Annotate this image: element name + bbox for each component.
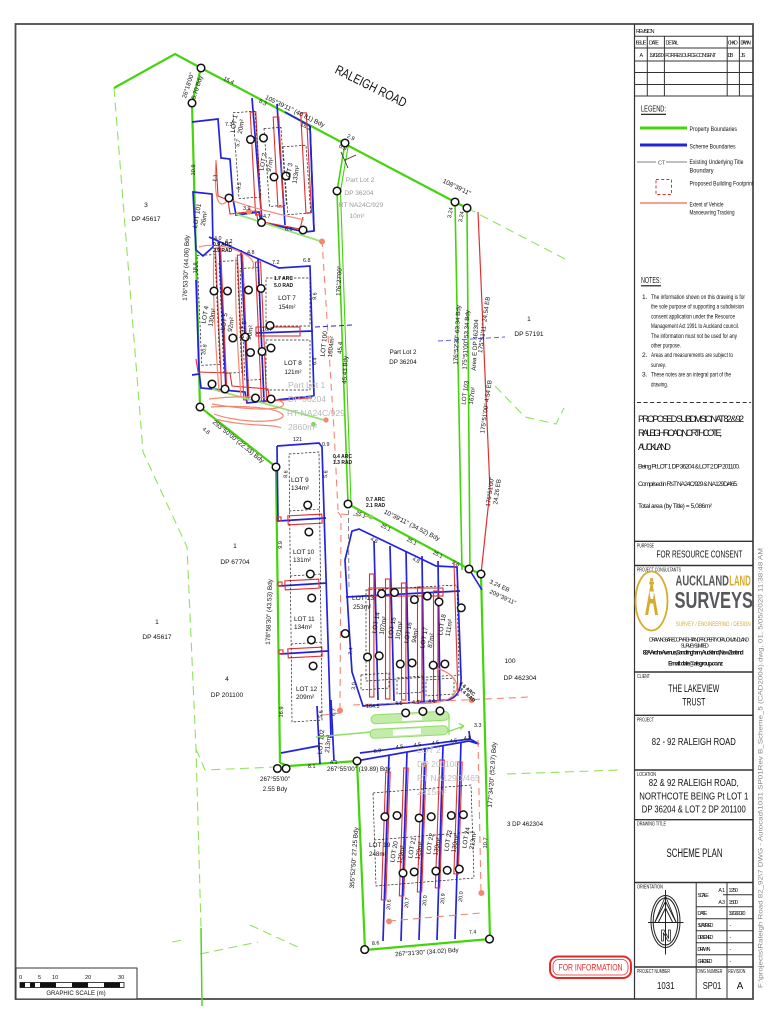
svg-text:97m²: 97m²	[266, 157, 275, 173]
svg-text:92m²: 92m²	[227, 317, 236, 333]
svg-text:20.0: 20.0	[458, 891, 465, 902]
svg-text:DP 36204: DP 36204	[344, 190, 374, 197]
svg-text:DP 36204: DP 36204	[389, 359, 417, 366]
svg-text:6.4: 6.4	[312, 357, 319, 365]
svg-text:SURVEYED: SURVEYED	[697, 923, 713, 929]
svg-text:LOT 19: LOT 19	[369, 842, 391, 849]
svg-text:20: 20	[85, 975, 91, 981]
svg-text:248m²: 248m²	[369, 851, 387, 858]
svg-text:REVISION: REVISION	[728, 969, 745, 975]
svg-text:DESIGNED: DESIGNED	[697, 935, 713, 941]
svg-text:2.1 RAD: 2.1 RAD	[366, 503, 386, 509]
svg-text:Management Act 1991 to Aucklan: Management Act 1991 to Auckland council.	[651, 323, 739, 330]
svg-text:26m²: 26m²	[200, 211, 209, 227]
svg-text:other purpose.: other purpose.	[651, 343, 681, 350]
svg-text:8.1: 8.1	[308, 764, 316, 770]
svg-text:Areas and measurements are sub: Areas and measurements are subject to	[651, 352, 733, 359]
svg-text:CLIENT: CLIENT	[637, 674, 650, 680]
svg-text:LEGEND:: LEGEND:	[641, 104, 666, 114]
svg-text:154m²: 154m²	[278, 305, 295, 311]
svg-text:4.5: 4.5	[395, 744, 403, 751]
svg-text:FOR INFORMATION: FOR INFORMATION	[559, 963, 623, 973]
svg-text:3.24: 3.24	[458, 211, 466, 223]
svg-text:-: -	[730, 947, 732, 953]
svg-text:DP 45617: DP 45617	[131, 216, 161, 223]
svg-text:F:\projects\Raleigh Road 82_92: F:\projects\Raleigh Road 82_92\7 DWG - A…	[759, 548, 765, 988]
svg-text:A: A	[640, 53, 644, 59]
svg-text:25.1: 25.1	[354, 510, 366, 520]
svg-text:87m²: 87m²	[427, 633, 436, 649]
svg-text:16.7: 16.7	[262, 327, 273, 333]
svg-text:ORIENTATION: ORIENTATION	[637, 885, 663, 891]
svg-text:20.8: 20.8	[201, 344, 209, 355]
svg-text:108°39'11": 108°39'11"	[441, 177, 472, 198]
svg-text:DP 67704: DP 67704	[220, 559, 250, 566]
svg-text:Extent of Vehicle: Extent of Vehicle	[690, 202, 724, 209]
svg-text:Part Lot 2: Part Lot 2	[346, 177, 375, 184]
svg-text:4.1: 4.1	[330, 760, 338, 766]
svg-text:131m²: 131m²	[293, 557, 311, 564]
svg-text:16.9: 16.9	[279, 706, 285, 717]
svg-text:DWG NUMBER: DWG NUMBER	[697, 969, 722, 975]
svg-text:CHKD: CHKD	[728, 41, 738, 47]
svg-text:JS: JS	[740, 53, 745, 59]
svg-text:Being Pt LOT 1 DP 36204 & LOT: Being Pt LOT 1 DP 36204 & LOT 2 DP 20110…	[638, 464, 740, 471]
svg-text:8.6: 8.6	[283, 470, 290, 478]
svg-text:25.1: 25.1	[379, 523, 391, 533]
svg-text:DATE: DATE	[649, 41, 659, 47]
svg-text:3.24: 3.24	[447, 207, 455, 219]
svg-text:DETAIL: DETAIL	[666, 41, 679, 47]
svg-text:RT NA129D/465: RT NA129D/465	[417, 773, 480, 783]
svg-text:3.3: 3.3	[474, 723, 482, 729]
svg-text:Scheme Boundaries: Scheme Boundaries	[690, 144, 737, 151]
svg-text:10.8: 10.8	[191, 164, 197, 175]
svg-text:1.: 1.	[642, 294, 648, 301]
svg-text:2860m²: 2860m²	[288, 422, 317, 432]
svg-text:94m²: 94m²	[411, 628, 420, 644]
svg-text:Proposed Building Footprint: Proposed Building Footprint	[690, 181, 754, 188]
svg-text:4.5: 4.5	[449, 738, 457, 745]
svg-text:5.7: 5.7	[235, 139, 242, 147]
svg-text:19/02/20: 19/02/20	[649, 53, 664, 59]
svg-text:3 DP 462304: 3 DP 462304	[507, 821, 544, 828]
svg-text:8.6: 8.6	[372, 940, 380, 947]
svg-text:7.2: 7.2	[272, 260, 280, 266]
svg-text:-: -	[730, 959, 732, 965]
svg-text:PROJECT NUMBER: PROJECT NUMBER	[637, 969, 670, 975]
svg-text:Part Lot 2: Part Lot 2	[390, 349, 417, 356]
svg-text:9.9: 9.9	[278, 541, 284, 549]
svg-text:N: N	[661, 928, 672, 945]
svg-text:SURVEYS LIMITED: SURVEYS LIMITED	[681, 644, 709, 650]
svg-text:176°52'30" 63.34 Bdy: 176°52'30" 63.34 Bdy	[452, 304, 462, 365]
svg-text:82A Aroha Avenue, Sandringham,: 82A Aroha Avenue, Sandringham, Auckland,…	[643, 651, 744, 657]
svg-text:5.6: 5.6	[323, 470, 330, 478]
svg-text:consent application under the: consent application under the Resource	[651, 313, 735, 320]
svg-text:6.8: 6.8	[303, 258, 311, 264]
svg-text:2.9 RAD: 2.9 RAD	[213, 248, 233, 254]
svg-text:45.43 Bdy: 45.43 Bdy	[341, 355, 349, 384]
svg-text:the sole purpose of supporting: the sole purpose of supporting a subdivi…	[651, 304, 744, 311]
svg-text:209m²: 209m²	[296, 694, 314, 701]
svg-text:2.: 2.	[642, 352, 648, 359]
svg-text:Comprised in R'sT NA24C/929 &: Comprised in R'sT NA24C/929 & NA129D/465…	[638, 481, 738, 488]
svg-text:176°53'30" (44.06) Bdy: 176°53'30" (44.06) Bdy	[181, 234, 191, 301]
svg-text:267°31'30" (34.02) Bdy: 267°31'30" (34.02) Bdy	[395, 947, 460, 958]
svg-text:82 & 92 RALEIGH ROAD,: 82 & 92 RALEIGH ROAD,	[649, 778, 739, 789]
svg-text:6.6: 6.6	[285, 227, 293, 233]
svg-text:30: 30	[118, 975, 124, 981]
svg-text:20.0: 20.0	[422, 895, 429, 906]
svg-text:GRAPHIC SCALE (m): GRAPHIC SCALE (m)	[46, 991, 105, 997]
svg-text:1: 1	[527, 316, 531, 323]
svg-text:121: 121	[293, 437, 302, 443]
svg-text:4.7: 4.7	[263, 214, 271, 220]
svg-text:10: 10	[52, 975, 58, 981]
svg-text:3: 3	[144, 202, 148, 209]
svg-text:1: 1	[155, 619, 159, 626]
svg-text:4.8: 4.8	[247, 250, 255, 256]
svg-text:1.1: 1.1	[212, 174, 219, 182]
svg-text:4.5: 4.5	[412, 700, 420, 706]
svg-text:drawing.: drawing.	[651, 381, 668, 388]
svg-text:3.0: 3.0	[351, 682, 358, 690]
svg-text:175°51'00" 4.54 EB: 175°51'00" 4.54 EB	[479, 380, 493, 434]
svg-text:Part Lot 1: Part Lot 1	[288, 380, 325, 390]
svg-text:-: -	[730, 923, 732, 929]
svg-text:7.3: 7.3	[225, 122, 233, 128]
svg-text:2.55 Bdy: 2.55 Bdy	[263, 786, 288, 793]
svg-text:176°27'00": 176°27'00"	[335, 266, 344, 296]
svg-text:NORTHCOTE BEING Pt LOT 1: NORTHCOTE BEING Pt LOT 1	[639, 792, 748, 803]
svg-text:-: -	[730, 935, 732, 941]
svg-text:178°58'30" (43.53) Bdy: 178°58'30" (43.53) Bdy	[264, 578, 274, 645]
svg-text:177°34'20" (52.97) Bdy: 177°34'20" (52.97) Bdy	[486, 741, 499, 808]
svg-text:20m²: 20m²	[237, 119, 246, 135]
svg-text:8.8: 8.8	[373, 748, 381, 755]
svg-text:PROJECT: PROJECT	[637, 718, 654, 724]
svg-text:4.6: 4.6	[428, 699, 436, 705]
svg-text:209°39'11": 209°39'11"	[488, 589, 516, 607]
svg-text:4.5: 4.5	[413, 742, 421, 749]
svg-text:1.7 ARC: 1.7 ARC	[274, 276, 293, 282]
svg-text:100: 100	[504, 658, 515, 665]
svg-text:1:500: 1:500	[729, 900, 739, 906]
svg-text:121m²: 121m²	[284, 370, 301, 376]
svg-text:LOT 7: LOT 7	[278, 295, 296, 302]
svg-text:7.4: 7.4	[469, 929, 477, 936]
svg-text:1.3 RAD: 1.3 RAD	[333, 460, 353, 466]
svg-text:20.6: 20.6	[386, 899, 393, 910]
svg-text:267°55'00": 267°55'00"	[260, 776, 290, 783]
svg-text:0: 0	[19, 975, 22, 981]
svg-text:SCHEME PLAN: SCHEME PLAN	[667, 846, 723, 860]
svg-text:THE LAKEVIEW: THE LAKEVIEW	[668, 683, 719, 695]
svg-text:167m²: 167m²	[468, 387, 477, 405]
svg-text:25.1: 25.1	[405, 537, 417, 547]
svg-text:3.: 3.	[642, 372, 648, 379]
svg-text:Manoeuvring Tracking: Manoeuvring Tracking	[690, 210, 735, 217]
svg-text:PROPOSED SUBDIVISION AT 82 & 9: PROPOSED SUBDIVISION AT 82 & 92	[638, 414, 744, 424]
svg-text:5.0 RAD: 5.0 RAD	[274, 283, 294, 289]
svg-text:DATE: DATE	[697, 911, 707, 917]
svg-text:DRAWING TITLE: DRAWING TITLE	[637, 822, 666, 828]
svg-text:LOT 9: LOT 9	[291, 477, 309, 484]
svg-text:6.7: 6.7	[331, 708, 338, 716]
svg-text:253m²: 253m²	[353, 604, 371, 611]
svg-text:RALEIGH ROAD, NORTHCOTE,: RALEIGH ROAD, NORTHCOTE,	[638, 428, 722, 438]
svg-text:1031: 1031	[657, 981, 675, 992]
svg-text:DP 462304: DP 462304	[504, 675, 537, 682]
svg-text:5: 5	[38, 975, 41, 981]
svg-text:25.1: 25.1	[431, 550, 443, 560]
svg-text:3.9: 3.9	[243, 206, 251, 212]
svg-text:Total area (by Title) = 5,086m: Total area (by Title) = 5,086m²	[638, 503, 713, 510]
svg-text:164.5: 164.5	[366, 704, 380, 710]
svg-text:These notes are an integral pa: These notes are an integral part of the	[651, 372, 731, 379]
svg-text:A1: A1	[718, 888, 725, 894]
svg-text:DP 201100: DP 201100	[417, 759, 459, 769]
svg-text:7.4: 7.4	[348, 647, 355, 655]
svg-text:Property Boundaries: Property Boundaries	[690, 126, 738, 133]
svg-text:4: 4	[225, 676, 229, 683]
svg-text:18.8: 18.8	[193, 262, 199, 273]
svg-text:REVISION: REVISION	[636, 29, 655, 35]
svg-text:4.5: 4.5	[431, 740, 439, 747]
svg-text:0.9: 0.9	[322, 442, 330, 448]
svg-text:SP01: SP01	[703, 981, 722, 992]
svg-text:RALEIGH ROAD: RALEIGH ROAD	[333, 62, 409, 110]
svg-text:The information must not be us: The information must not be used for any	[651, 333, 738, 340]
svg-text:LOT 10: LOT 10	[293, 549, 315, 556]
svg-text:1604m²: 1604m²	[327, 336, 336, 358]
svg-text:20.7: 20.7	[404, 897, 411, 908]
svg-text:LOT 13: LOT 13	[352, 595, 374, 602]
svg-text:267°55'00" (19.89) Bdy: 267°55'00" (19.89) Bdy	[327, 766, 392, 773]
svg-text:4.5: 4.5	[395, 701, 403, 707]
svg-text:6.5: 6.5	[236, 182, 243, 190]
svg-text:LOT 8: LOT 8	[284, 360, 302, 367]
svg-text:45.4: 45.4	[337, 341, 345, 354]
svg-text:5.6: 5.6	[318, 710, 325, 718]
svg-text:LOT 12: LOT 12	[296, 686, 318, 693]
svg-text:4.0: 4.0	[214, 236, 222, 242]
svg-text:90m²: 90m²	[246, 325, 255, 341]
svg-text:1: 1	[233, 543, 237, 550]
svg-text:RT NA24C/929: RT NA24C/929	[339, 202, 384, 209]
svg-text:SURVEY / ENGINEERING / DESIGN: SURVEY / ENGINEERING / DESIGN	[676, 621, 751, 628]
svg-text:DP 36204: DP 36204	[288, 394, 326, 404]
svg-text:CT: CT	[658, 161, 666, 167]
svg-text:Email: dale@alsgroup.co.nz: Email: dale@alsgroup.co.nz	[668, 662, 723, 668]
svg-text:SCALE: SCALE	[697, 893, 709, 899]
svg-text:1:250: 1:250	[729, 888, 739, 894]
svg-text:A3: A3	[718, 900, 725, 906]
svg-text:FOR RESOURCE CONSENT: FOR RESOURCE CONSENT	[657, 550, 743, 561]
svg-text:LOT 11: LOT 11	[294, 616, 315, 623]
svg-text:DRWN: DRWN	[740, 41, 751, 47]
svg-text:82 - 92 RALEIGH ROAD: 82 - 92 RALEIGH ROAD	[652, 737, 736, 748]
svg-text:CHECKED: CHECKED	[697, 959, 712, 965]
svg-text:NOTES:: NOTES:	[641, 275, 661, 285]
svg-text:4.8: 4.8	[201, 426, 211, 436]
svg-text:355°52'50" 27.25 Bdy: 355°52'50" 27.25 Bdy	[348, 826, 360, 889]
svg-text:DRAWN: DRAWN	[697, 947, 710, 953]
svg-text:ISSUE: ISSUE	[636, 41, 647, 47]
svg-text:SURVEYS: SURVEYS	[675, 587, 754, 613]
svg-text:2415m²: 2415m²	[417, 787, 446, 797]
svg-text:134m²: 134m²	[291, 485, 309, 492]
svg-text:10.7: 10.7	[483, 837, 490, 848]
svg-text:TRUST: TRUST	[682, 697, 705, 709]
svg-text:The information shown on this: The information shown on this drawing is…	[651, 294, 746, 301]
svg-text:10m²: 10m²	[349, 213, 365, 220]
svg-text:4.8: 4.8	[463, 735, 471, 742]
svg-text:DP 45617: DP 45617	[142, 634, 172, 641]
svg-text:AUCKLAND: AUCKLAND	[638, 442, 671, 452]
svg-text:134m²: 134m²	[294, 624, 312, 631]
svg-text:19/02/2020: 19/02/2020	[729, 911, 746, 917]
svg-text:A: A	[737, 981, 744, 992]
svg-text:RT NA24C/929: RT NA24C/929	[287, 408, 345, 418]
svg-text:DP 36204 & LOT 2 DP 201100: DP 36204 & LOT 2 DP 201100	[642, 805, 746, 816]
svg-text:20.9: 20.9	[440, 893, 447, 904]
svg-text:PURPOSE: PURPOSE	[637, 544, 654, 550]
svg-text:DP 201100: DP 201100	[211, 692, 244, 699]
svg-text:213m²: 213m²	[324, 734, 333, 753]
svg-text:Boundary: Boundary	[690, 168, 715, 175]
svg-text:FOR RESOURCE CONSENT: FOR RESOURCE CONSENT	[665, 53, 717, 59]
svg-text:DP 57191: DP 57191	[514, 331, 544, 338]
svg-text:4.2: 4.2	[225, 239, 233, 245]
svg-text:9.6: 9.6	[312, 292, 319, 300]
svg-text:DB: DB	[728, 53, 734, 59]
svg-text:Existing Underlying Title: Existing Underlying Title	[690, 159, 744, 166]
svg-text:survey.: survey.	[651, 362, 666, 369]
